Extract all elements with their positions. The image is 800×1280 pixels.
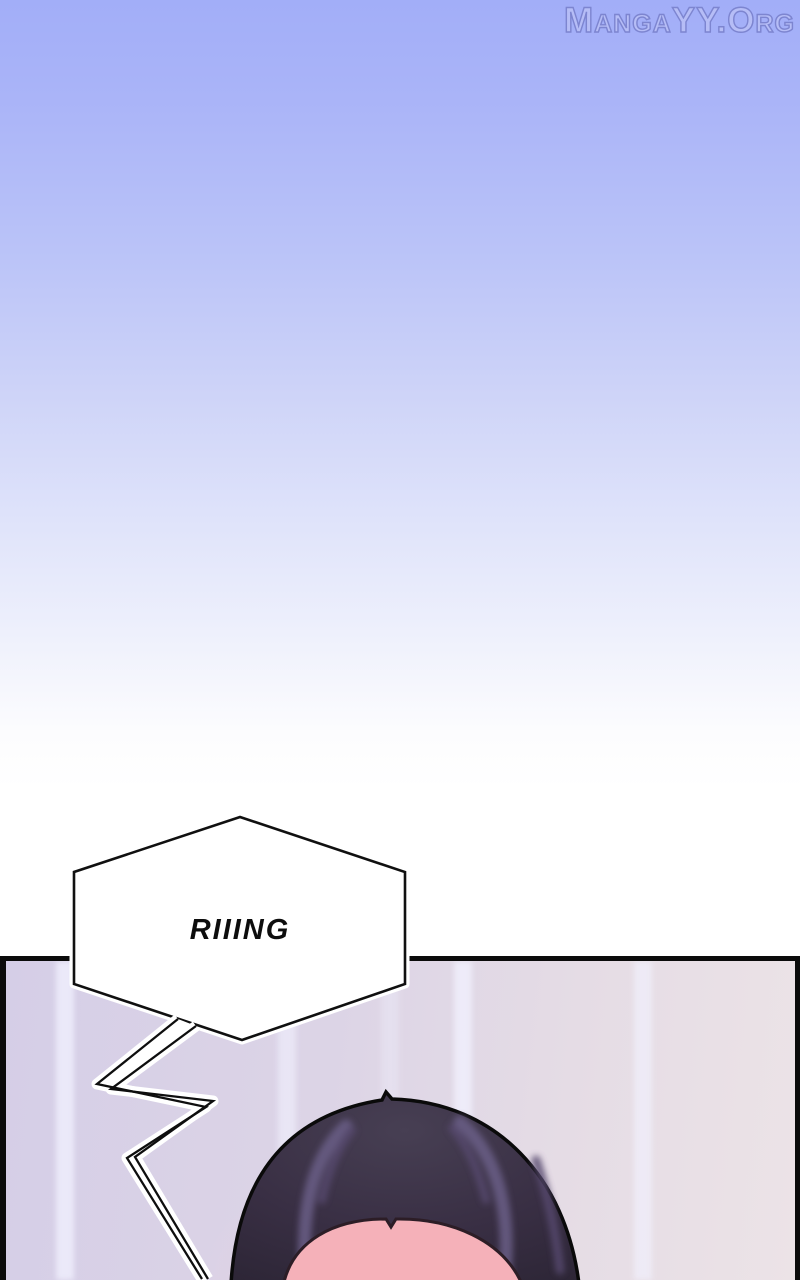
site-watermark: MangaYY.Org — [564, 2, 795, 41]
speech-bubble-tail — [97, 1019, 213, 1279]
manga-page: RIIING MangaYY.Org — [0, 0, 800, 1280]
panel-artwork — [0, 0, 800, 1280]
character-head-illustration — [231, 1092, 579, 1280]
sfx-text: RIIING — [145, 914, 335, 947]
